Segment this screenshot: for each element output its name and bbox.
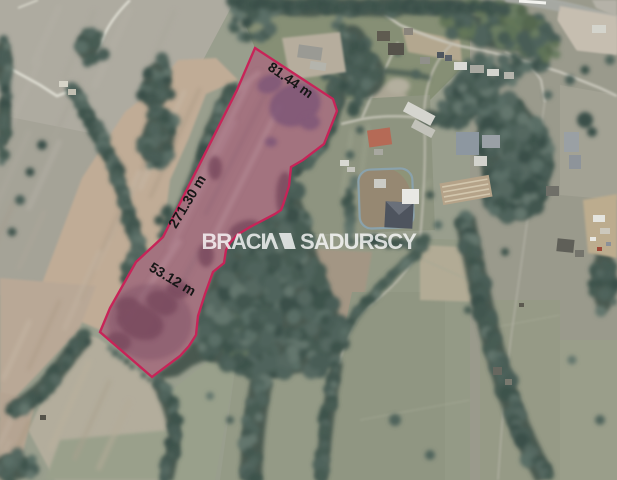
svg-text:SADURSCY: SADURSCY xyxy=(300,229,417,254)
svg-text:BRACI: BRACI xyxy=(202,229,266,254)
